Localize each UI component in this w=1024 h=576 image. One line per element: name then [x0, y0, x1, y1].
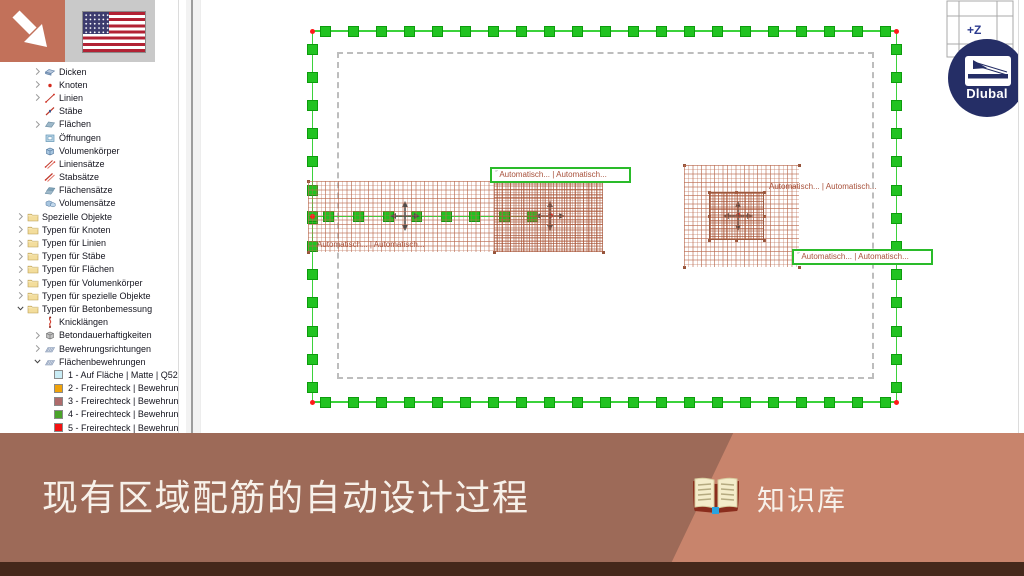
- selection-handle[interactable]: [684, 397, 695, 408]
- selection-handle[interactable]: [307, 354, 318, 365]
- folder-icon: [26, 290, 40, 302]
- chevron-collapsed-icon[interactable]: [31, 344, 43, 354]
- selection-handle[interactable]: [712, 397, 723, 408]
- tree-item-label: 5 - Freirechteck | Bewehrungs: [66, 423, 178, 433]
- tree-item-label: Öffnungen: [57, 133, 101, 143]
- application-window: DickenKnotenLinienStäbeFlächenÖffnungenV…: [0, 0, 1024, 576]
- selection-handle[interactable]: [600, 397, 611, 408]
- selection-handle[interactable]: [891, 354, 902, 365]
- selection-handle[interactable]: [432, 26, 443, 37]
- volumenkoerper-icon: [43, 145, 57, 157]
- node-dot: [894, 29, 899, 34]
- reinforcement-color-swatch: [54, 423, 63, 432]
- chevron-placeholder: [31, 106, 43, 116]
- tree-item-flaechenbewehrung-5[interactable]: 5 - Freirechteck | Bewehrungs: [0, 421, 178, 433]
- label-text: Automatisch... | Automatisch...: [769, 182, 876, 191]
- chevron-collapsed-icon[interactable]: [14, 251, 26, 261]
- tree-item-label: 4 - Freirechteck | Bewehrungs: [66, 409, 178, 419]
- tree-item-label: Knoten: [57, 80, 88, 90]
- chevron-collapsed-icon[interactable]: [14, 212, 26, 222]
- tree-item-typen-fuer-betonbemessung[interactable]: Typen für Betonbemessung: [0, 302, 178, 315]
- tree-item-label: Typen für Betonbemessung: [40, 304, 152, 314]
- us-flag-icon: [83, 12, 145, 52]
- tree-item-volumenkoerper[interactable]: Volumenkörper: [0, 144, 178, 157]
- chevron-collapsed-icon[interactable]: [14, 238, 26, 248]
- selection-handle[interactable]: [516, 26, 527, 37]
- reinforcement-color-swatch: [54, 370, 63, 379]
- tree-item-typen-fuer-spezielle-objekte[interactable]: Typen für spezielle Objekte: [0, 289, 178, 302]
- tree-item-flaechenbewehrung-2[interactable]: 2 - Freirechteck | Bewehrungs: [0, 382, 178, 395]
- selection-handle[interactable]: [307, 100, 318, 111]
- chevron-collapsed-icon[interactable]: [14, 291, 26, 301]
- selection-handle[interactable]: [432, 397, 443, 408]
- reinforcement-label-square-top[interactable]: Automatisch... | Automatisch...: [769, 181, 876, 193]
- canvas-border: [1018, 0, 1019, 433]
- tree-item-label: Flächen: [57, 119, 91, 129]
- tree-item-label: Typen für Knoten: [40, 225, 111, 235]
- chevron-expanded-icon[interactable]: [31, 357, 43, 367]
- selection-handle[interactable]: [307, 382, 318, 393]
- chevron-collapsed-icon[interactable]: [14, 264, 26, 274]
- selection-handle[interactable]: [307, 72, 318, 83]
- tree-item-label: Betondauerhaftigkeiten: [57, 330, 152, 340]
- selection-handle[interactable]: [768, 397, 779, 408]
- selection-handle[interactable]: [824, 26, 835, 37]
- dicken-icon: [43, 66, 57, 78]
- selection-handle[interactable]: [516, 397, 527, 408]
- tree-item-label: Dicken: [57, 67, 87, 77]
- selection-handle[interactable]: [684, 26, 695, 37]
- tree-item-label: Volumenkörper: [57, 146, 120, 156]
- tree-item-label: Bewehrungsrichtungen: [57, 344, 151, 354]
- slide-transition-graphic: [0, 0, 65, 62]
- tree-item-label: 2 - Freirechteck | Bewehrungs: [66, 383, 178, 393]
- tree-item-label: Stäbe: [57, 106, 83, 116]
- selection-handle[interactable]: [880, 397, 891, 408]
- chevron-collapsed-icon[interactable]: [31, 67, 43, 77]
- selection-handle[interactable]: [572, 397, 583, 408]
- selection-handle[interactable]: [460, 26, 471, 37]
- selection-handle[interactable]: [891, 213, 902, 224]
- open-book-icon: [690, 476, 742, 515]
- beton-icon: [43, 329, 57, 341]
- selection-handle[interactable]: [891, 382, 902, 393]
- selection-handle[interactable]: [544, 26, 555, 37]
- bewehrung-icon: [43, 356, 57, 368]
- liniensaetze-icon: [43, 158, 57, 170]
- selection-handle[interactable]: [656, 26, 667, 37]
- reinforcement-color-swatch: [54, 384, 63, 393]
- tree-item-typen-fuer-knoten[interactable]: Typen für Knoten: [0, 223, 178, 236]
- selection-handle[interactable]: [488, 397, 499, 408]
- selection-handle[interactable]: [307, 44, 318, 55]
- tree-item-dicken[interactable]: Dicken: [0, 65, 178, 78]
- selection-handle[interactable]: [320, 26, 331, 37]
- tree-item-volumensaetze[interactable]: Volumensätze: [0, 197, 178, 210]
- folder-icon: [26, 303, 40, 315]
- selection-handle[interactable]: [600, 26, 611, 37]
- label-marker-icon: ˝: [495, 169, 497, 181]
- tree-item-typen-fuer-flaechen[interactable]: Typen für Flächen: [0, 263, 178, 276]
- selection-handle[interactable]: [628, 397, 639, 408]
- bewehrung-icon: [43, 343, 57, 355]
- selection-handle[interactable]: [852, 397, 863, 408]
- folder-icon: [26, 277, 40, 289]
- selection-handle[interactable]: [880, 26, 891, 37]
- selection-handle[interactable]: [544, 397, 555, 408]
- tree-item-knicklaengen[interactable]: Knicklängen: [0, 316, 178, 329]
- selection-handle[interactable]: [376, 397, 387, 408]
- flag-panel: [65, 0, 155, 62]
- chevron-placeholder: [31, 172, 43, 182]
- tree-item-label: Linien: [57, 93, 83, 103]
- tree-item-label: Spezielle Objekte: [40, 212, 112, 222]
- tree-item-flaechenbewehrungen[interactable]: Flächenbewehrungen: [0, 355, 178, 368]
- selection-handle[interactable]: [740, 397, 751, 408]
- tree-item-flaechensaetze[interactable]: Flächensätze: [0, 184, 178, 197]
- selection-handle[interactable]: [852, 26, 863, 37]
- selection-handle[interactable]: [796, 26, 807, 37]
- label-text: Automatisch... | Automatisch...: [317, 240, 424, 249]
- chevron-collapsed-icon[interactable]: [31, 93, 43, 103]
- us-flag-canton: [83, 12, 109, 34]
- selection-handle[interactable]: [460, 397, 471, 408]
- volumensaetze-icon: [43, 197, 57, 209]
- folder-icon: [26, 263, 40, 275]
- selection-handle[interactable]: [768, 26, 779, 37]
- tree-item-typen-fuer-staebe[interactable]: Typen für Stäbe: [0, 250, 178, 263]
- selection-handle[interactable]: [740, 26, 751, 37]
- tree-item-label: Typen für Stäbe: [40, 251, 106, 261]
- model-canvas[interactable]: Automatisch... | Automatisch... ˝ Automa…: [200, 0, 1018, 433]
- selection-handle[interactable]: [891, 269, 902, 280]
- selection-handle[interactable]: [891, 72, 902, 83]
- flaechen-icon: [43, 118, 57, 130]
- chevron-placeholder: [31, 185, 43, 195]
- selection-handle[interactable]: [628, 26, 639, 37]
- tree-item-linien[interactable]: Linien: [0, 91, 178, 104]
- tree-item-bewehrungsrichtungen[interactable]: Bewehrungsrichtungen: [0, 342, 178, 355]
- tree-item-typen-fuer-volumenkoerper[interactable]: Typen für Volumenkörper: [0, 276, 178, 289]
- tree-item-stabsaetze[interactable]: Stabsätze: [0, 171, 178, 184]
- node-dot: [894, 400, 899, 405]
- reinforcement-color-swatch: [54, 397, 63, 406]
- dlubal-logo: Dlubal: [948, 39, 1018, 117]
- tree-item-liniensaetze[interactable]: Liniensätze: [0, 157, 178, 170]
- tree-item-label: Typen für Volumenkörper: [40, 278, 143, 288]
- reinforcement-label-square-bottom[interactable]: ˝ Automatisch... | Automatisch...: [792, 249, 933, 265]
- tree-item-label: Knicklängen: [57, 317, 108, 327]
- tree-item-label: Flächensätze: [57, 185, 113, 195]
- chevron-expanded-icon[interactable]: [14, 304, 26, 314]
- tree-scrollbar-thumb[interactable]: [191, 0, 193, 433]
- selection-handle[interactable]: [348, 26, 359, 37]
- folder-icon: [26, 237, 40, 249]
- reinforcement-label-strip-bottom[interactable]: Automatisch... | Automatisch...: [317, 239, 424, 251]
- selection-handle[interactable]: [307, 326, 318, 337]
- selection-handle[interactable]: [824, 397, 835, 408]
- selection-handle[interactable]: [891, 185, 902, 196]
- folder-icon: [26, 250, 40, 262]
- dlubal-bridge-icon: [965, 56, 1011, 86]
- label-marker-icon: ˝: [797, 251, 799, 263]
- viewcube-axis-label: +Z: [967, 23, 981, 37]
- dlubal-logo-card: [965, 56, 1011, 86]
- node-dot: [310, 29, 315, 34]
- chevron-placeholder: [31, 198, 43, 208]
- chevron-collapsed-icon[interactable]: [31, 330, 43, 340]
- tree-item-spezielle-objekte[interactable]: Spezielle Objekte: [0, 210, 178, 223]
- chevron-collapsed-icon[interactable]: [14, 225, 26, 235]
- tree-item-staebe[interactable]: Stäbe: [0, 105, 178, 118]
- tree-item-flaechenbewehrung-3[interactable]: 3 - Freirechteck | Bewehrungs: [0, 395, 178, 408]
- tree-item-label: Stabsätze: [57, 172, 99, 182]
- selection-handle[interactable]: [891, 297, 902, 308]
- selection-handle[interactable]: [404, 397, 415, 408]
- tree-item-betondauerhaftigkeiten[interactable]: Betondauerhaftigkeiten: [0, 329, 178, 342]
- selection-handle[interactable]: [891, 128, 902, 139]
- tree-item-label: 1 - Auf Fläche | Matte | Q524A: [66, 370, 178, 380]
- chevron-placeholder: [31, 317, 43, 327]
- selection-handle[interactable]: [656, 397, 667, 408]
- title-banner: 现有区域配筋的自动设计过程 知识库: [0, 433, 1024, 562]
- panel-border: [178, 0, 179, 433]
- linien-icon: [43, 92, 57, 104]
- selection-handle[interactable]: [891, 44, 902, 55]
- label-text: Automatisch... | Automatisch...: [801, 251, 908, 263]
- tree-item-label: Typen für Flächen: [40, 264, 114, 274]
- reinforcement-color-swatch: [54, 410, 63, 419]
- folder-icon: [26, 211, 40, 223]
- chevron-collapsed-icon[interactable]: [31, 80, 43, 90]
- selection-handle[interactable]: [404, 26, 415, 37]
- banner-bottom-strip: [0, 562, 1024, 576]
- node-dot: [310, 400, 315, 405]
- selection-handle[interactable]: [488, 26, 499, 37]
- navigator-tree-panel: DickenKnotenLinienStäbeFlächenÖffnungenV…: [0, 62, 178, 433]
- selection-handle[interactable]: [891, 326, 902, 337]
- selection-handle[interactable]: [348, 397, 359, 408]
- chevron-placeholder: [31, 133, 43, 143]
- tree-item-oeffnungen[interactable]: Öffnungen: [0, 131, 178, 144]
- reinforcement-label-strip-top[interactable]: ˝ Automatisch... | Automatisch...: [490, 167, 631, 183]
- stabsaetze-icon: [43, 171, 57, 183]
- tree-item-label: 3 - Freirechteck | Bewehrungs: [66, 396, 178, 406]
- selection-handle[interactable]: [712, 26, 723, 37]
- selection-handle[interactable]: [572, 26, 583, 37]
- selection-handle[interactable]: [320, 397, 331, 408]
- chevron-collapsed-icon[interactable]: [14, 278, 26, 288]
- selection-handle[interactable]: [307, 297, 318, 308]
- tree-item-label: Typen für spezielle Objekte: [40, 291, 151, 301]
- folder-icon: [26, 224, 40, 236]
- flaechensaetze-icon: [43, 184, 57, 196]
- fe-mesh-square-inner-region[interactable]: [709, 192, 764, 240]
- selection-handle[interactable]: [307, 156, 318, 167]
- slide-title: 现有区域配筋的自动设计过程: [42, 469, 530, 521]
- selection-handle[interactable]: [796, 397, 807, 408]
- knicklaengen-icon: [43, 316, 57, 328]
- chevron-collapsed-icon[interactable]: [31, 119, 43, 129]
- selection-handle[interactable]: [891, 100, 902, 111]
- chevron-placeholder: [31, 159, 43, 169]
- dlubal-logo-text: Dlubal: [948, 86, 1018, 101]
- tree-item-label: Volumensätze: [57, 198, 116, 208]
- chevron-placeholder: [31, 146, 43, 156]
- tree-item-label: Typen für Linien: [40, 238, 106, 248]
- selection-handle[interactable]: [307, 128, 318, 139]
- selection-handle[interactable]: [891, 156, 902, 167]
- knowledge-base-label: 知识库: [757, 479, 847, 519]
- selection-handle[interactable]: [307, 269, 318, 280]
- tree-item-label: Flächenbewehrungen: [57, 357, 146, 367]
- tree-item-flaechen[interactable]: Flächen: [0, 118, 178, 131]
- tree-item-knoten[interactable]: Knoten: [0, 78, 178, 91]
- fe-mesh-strip-dense-region[interactable]: [494, 181, 603, 252]
- tree-item-typen-fuer-linien[interactable]: Typen für Linien: [0, 236, 178, 249]
- label-text: Automatisch... | Automatisch...: [499, 169, 606, 181]
- arrow-down-right-icon: [0, 0, 65, 62]
- tree-item-flaechenbewehrung-4[interactable]: 4 - Freirechteck | Bewehrungs: [0, 408, 178, 421]
- knoten-icon: [43, 79, 57, 91]
- oeffnungen-icon: [43, 132, 57, 144]
- tree-item-label: Liniensätze: [57, 159, 105, 169]
- tree-item-flaechenbewehrung-1[interactable]: 1 - Auf Fläche | Matte | Q524A: [0, 368, 178, 381]
- tree-scrollbar[interactable]: [186, 0, 200, 433]
- staebe-icon: [43, 105, 57, 117]
- selection-handle[interactable]: [376, 26, 387, 37]
